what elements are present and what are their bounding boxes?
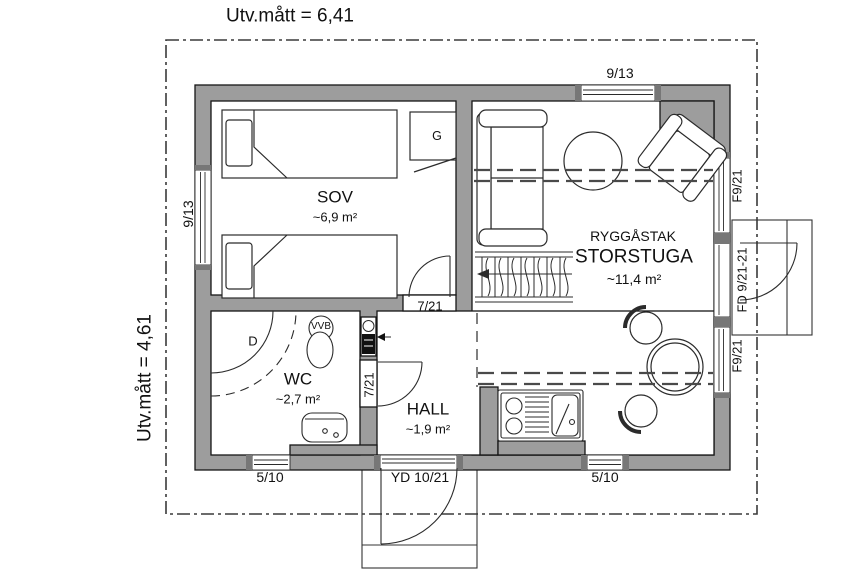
washbasin-icon	[302, 413, 347, 442]
wc-door-label: 7/21	[363, 372, 376, 397]
french-door-right	[714, 239, 730, 322]
toilet-icon	[307, 332, 333, 368]
entry-door-opening	[374, 455, 463, 470]
bed-icon	[222, 110, 397, 178]
window-right-upper-label: F9/21	[731, 169, 744, 202]
room-area-storstuga: ~11,4 m²	[607, 272, 662, 286]
room-label-sov: SOV	[317, 189, 353, 206]
outer-dim-left: Utv.mått = 4,61	[136, 314, 155, 442]
window-bottom-left-label: 5/10	[256, 470, 283, 484]
bed-icon	[222, 235, 397, 298]
room-label-wc: WC	[284, 371, 312, 388]
entry-door-label: YD 10/21	[391, 470, 449, 484]
room-area-wc: ~2,7 m²	[276, 393, 320, 406]
floor-plan: Utv.mått = 6,41 Utv.mått = 4,61 9/13 9/1…	[0, 0, 864, 576]
window-left	[195, 165, 211, 270]
window-left-label: 9/13	[181, 200, 195, 227]
window-right-lower-label: F9/21	[731, 339, 744, 372]
ceiling-label-storstuga: RYGGÅSTAK	[590, 229, 676, 243]
window-bottom-left	[246, 455, 290, 470]
wardrobe-label: G	[432, 130, 442, 143]
room-area-hall: ~1,9 m²	[406, 423, 450, 436]
outer-dim-top: Utv.mått = 6,41	[226, 7, 354, 26]
window-right-lower	[714, 322, 730, 398]
window-top	[575, 85, 661, 101]
window-bottom-right	[581, 455, 629, 470]
kitchenette-icon	[498, 390, 583, 441]
room-area-sov: ~6,9 m²	[313, 211, 357, 224]
shower-label: D	[248, 335, 257, 348]
room-label-storstuga: STORSTUGA	[575, 248, 693, 267]
sov-door-label: 7/21	[417, 300, 442, 313]
window-top-label: 9/13	[606, 66, 633, 80]
sofa-icon	[477, 110, 547, 246]
water-heater-label: VVB	[311, 322, 331, 332]
room-label-hall: HALL	[407, 401, 450, 418]
window-bottom-right-label: 5/10	[591, 470, 618, 484]
french-door-label: FD 9/21-21	[736, 247, 749, 312]
